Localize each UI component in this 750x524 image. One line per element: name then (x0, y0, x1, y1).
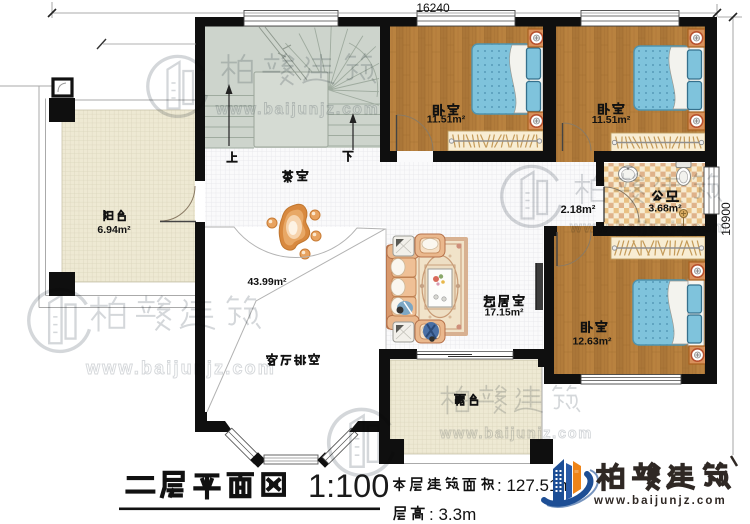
svg-text:www.baijunjz.com: www.baijunjz.com (85, 358, 276, 378)
svg-text:11.51m²: 11.51m² (592, 114, 631, 126)
svg-text:6.94m²: 6.94m² (97, 224, 131, 236)
svg-text:: 3.3m: : 3.3m (429, 505, 476, 524)
svg-text:www.baijunjz.com: www.baijunjz.com (439, 426, 593, 442)
svg-text:17.15m²: 17.15m² (484, 307, 524, 319)
svg-text:www.baijunjz.com: www.baijunjz.com (215, 101, 380, 118)
svg-text:www.baijunjz.com: www.baijunjz.com (569, 219, 728, 236)
svg-text:12.63m²: 12.63m² (572, 336, 612, 348)
svg-text:1:100: 1:100 (308, 468, 389, 504)
svg-text:43.99m²: 43.99m² (247, 276, 287, 288)
svg-text:16240: 16240 (416, 1, 450, 15)
svg-text:3.68m²: 3.68m² (648, 203, 682, 215)
svg-text:11.51m²: 11.51m² (427, 114, 466, 126)
svg-text:www.baijunjz.com: www.baijunjz.com (593, 495, 727, 507)
svg-text:2.18m²: 2.18m² (561, 204, 596, 216)
